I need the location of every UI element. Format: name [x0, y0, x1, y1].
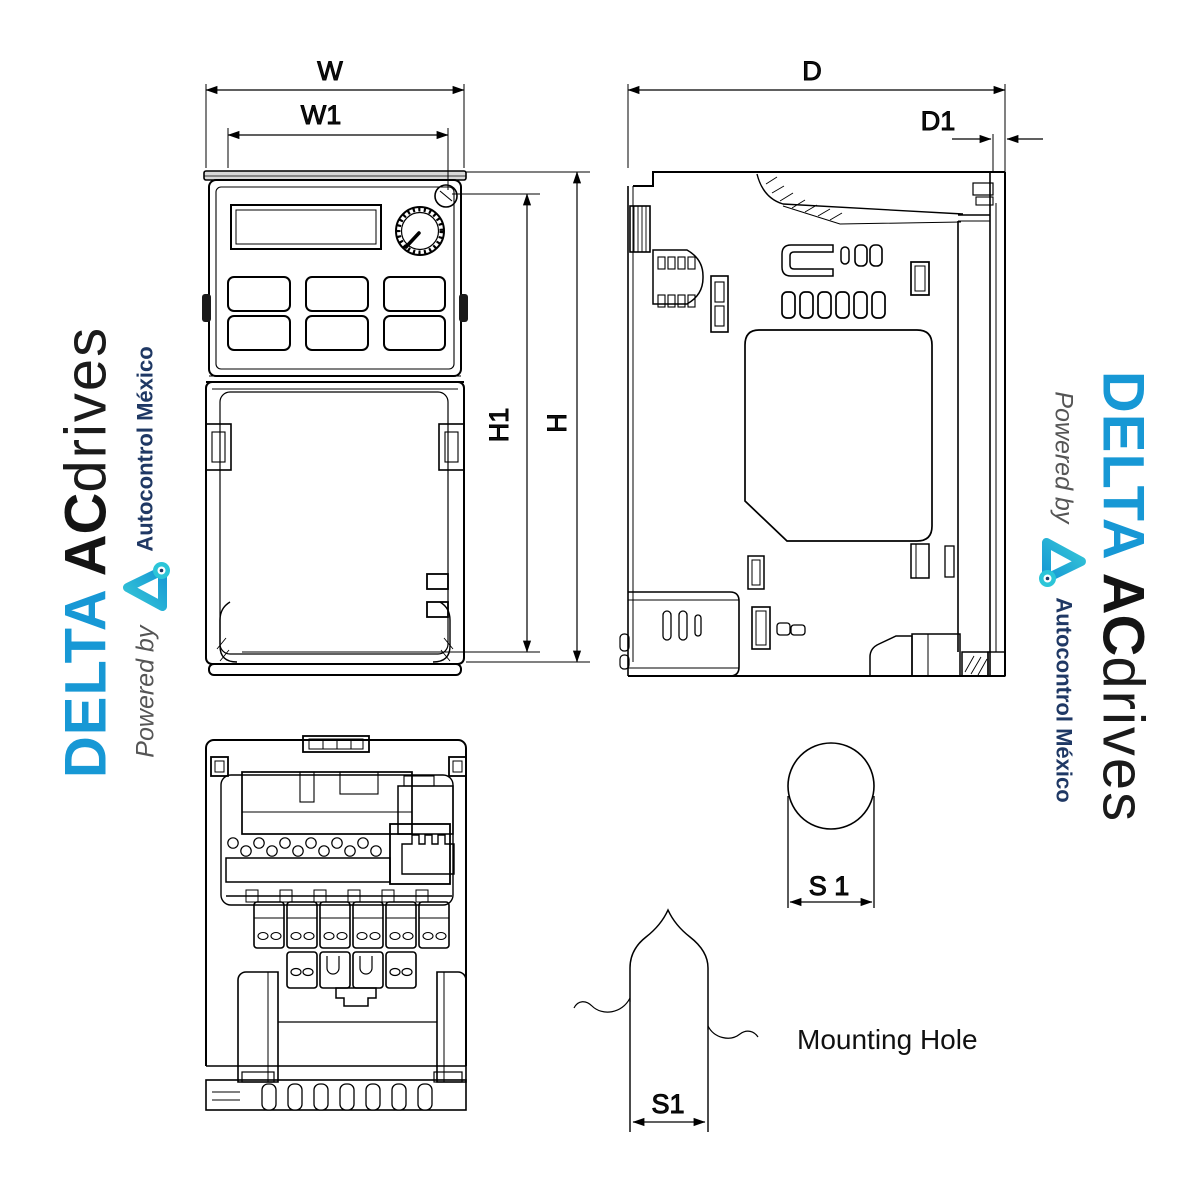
keypad-panel	[202, 180, 468, 376]
front-cover	[206, 382, 464, 675]
side-dimensions: D D1	[628, 56, 1043, 172]
bottom-tab	[336, 988, 376, 1006]
dim-label-d: D	[802, 56, 822, 86]
bottom-view	[206, 736, 466, 1110]
side-panel	[745, 330, 932, 541]
hinge-tab-left	[202, 294, 211, 322]
mounting-hole-caption: Mounting Hole	[797, 1024, 978, 1055]
front-dimensions: W W1 H1 H	[206, 56, 590, 662]
dim-label-w: W	[317, 56, 343, 86]
mounting-hole-slot: S1	[574, 910, 758, 1132]
dim-label-s1-top: S 1	[809, 871, 850, 901]
pin-row	[228, 838, 381, 856]
side-connector	[653, 250, 728, 332]
dim-label-h: H	[542, 413, 572, 433]
technical-drawing: W W1 H1 H	[0, 0, 1200, 1200]
hinge-tab-right	[459, 294, 468, 322]
side-lower-details	[620, 544, 988, 676]
lower-terminals	[287, 952, 416, 988]
keypad-buttons	[228, 277, 445, 350]
dim-label-w1: W1	[301, 100, 342, 130]
knob	[396, 207, 444, 255]
front-view	[202, 171, 468, 675]
mounting-plate	[958, 172, 1005, 676]
power-terminals	[254, 902, 449, 948]
vent-slots	[782, 245, 929, 318]
dim-label-s1-bottom: S1	[651, 1089, 684, 1119]
dimension-diagram: W W1 H1 H	[0, 0, 1200, 1200]
rj45-port	[390, 824, 454, 884]
din-rail-recess	[757, 174, 963, 224]
display	[231, 205, 381, 249]
dim-label-h1: H1	[484, 408, 514, 443]
heatsink-fins	[206, 1080, 466, 1110]
mounting-hole-round: S 1	[788, 743, 874, 908]
side-view	[620, 172, 1005, 676]
dim-label-d1: D1	[921, 106, 956, 136]
